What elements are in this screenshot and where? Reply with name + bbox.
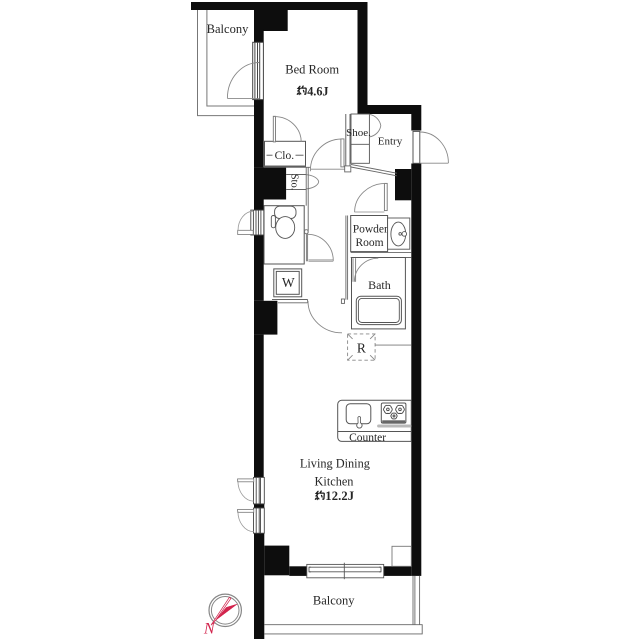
svg-text:12.2J: 12.2J [325, 489, 354, 503]
svg-text:Counter: Counter [349, 432, 386, 444]
svg-text:N: N [203, 620, 216, 637]
svg-text:Sto.: Sto. [288, 174, 299, 191]
svg-text:Powder: Powder [353, 224, 388, 236]
svg-text:R: R [357, 340, 366, 355]
svg-text:Balcony: Balcony [313, 594, 355, 608]
svg-text:Kitchen: Kitchen [315, 475, 354, 489]
svg-text:Shoe.: Shoe. [346, 127, 371, 139]
svg-text:Bath: Bath [368, 278, 391, 292]
svg-text:W: W [282, 275, 295, 290]
svg-text:Clo.: Clo. [275, 150, 295, 162]
svg-text:Bed Room: Bed Room [285, 63, 339, 77]
svg-text:Living Dining: Living Dining [300, 457, 370, 471]
svg-text:Room: Room [355, 237, 383, 249]
svg-text:4.6J: 4.6J [307, 84, 328, 98]
svg-text:Entry: Entry [378, 136, 403, 148]
svg-text:Balcony: Balcony [207, 22, 249, 36]
